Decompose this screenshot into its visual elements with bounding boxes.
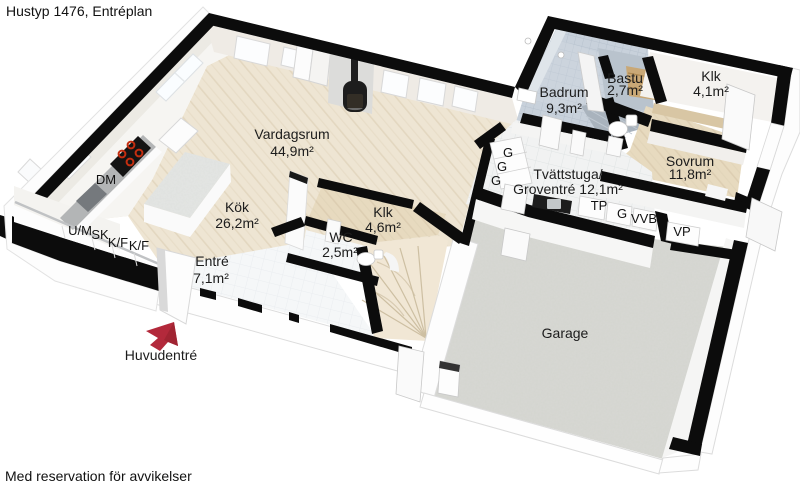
svg-text:DM: DM (96, 172, 116, 187)
svg-text:2,7m²: 2,7m² (607, 82, 643, 98)
svg-text:U/M: U/M (68, 223, 92, 238)
svg-text:G: G (497, 159, 507, 174)
svg-text:Badrum: Badrum (539, 84, 588, 100)
svg-text:Tvättstuga/: Tvättstuga/ (533, 166, 602, 182)
svg-text:VP: VP (673, 224, 690, 239)
svg-text:4,1m²: 4,1m² (693, 83, 729, 99)
svg-text:K/F: K/F (129, 238, 149, 253)
svg-text:9,3m²: 9,3m² (546, 100, 582, 116)
svg-text:11,8m²: 11,8m² (669, 166, 712, 182)
svg-text:4,6m²: 4,6m² (365, 219, 401, 235)
svg-text:26,2m²: 26,2m² (215, 215, 259, 231)
svg-text:G: G (617, 206, 627, 221)
svg-text:44,9m²: 44,9m² (270, 143, 314, 159)
svg-text:K/F: K/F (108, 235, 128, 250)
svg-text:Med reservation för avvikelser: Med reservation för avvikelser (5, 468, 192, 484)
svg-text:7,1m²: 7,1m² (193, 270, 229, 286)
svg-text:VVB: VVB (631, 211, 657, 226)
svg-text:G: G (491, 173, 501, 188)
svg-text:WC: WC (329, 229, 352, 245)
svg-text:Kök: Kök (225, 199, 250, 215)
svg-text:G: G (503, 145, 513, 160)
svg-text:TP: TP (591, 198, 608, 213)
svg-text:Entré: Entré (195, 253, 229, 269)
svg-text:SK: SK (91, 227, 109, 242)
svg-text:Garage: Garage (542, 325, 589, 341)
svg-text:Klk: Klk (373, 204, 393, 220)
svg-text:Vardagsrum: Vardagsrum (254, 126, 329, 142)
svg-text:2,5m²: 2,5m² (322, 244, 358, 260)
svg-text:Hustyp 1476, Entréplan: Hustyp 1476, Entréplan (6, 3, 152, 19)
svg-text:Groventré 12,1m²: Groventré 12,1m² (513, 181, 623, 197)
svg-text:Huvudentré: Huvudentré (125, 347, 198, 363)
svg-text:Klk: Klk (701, 68, 721, 84)
